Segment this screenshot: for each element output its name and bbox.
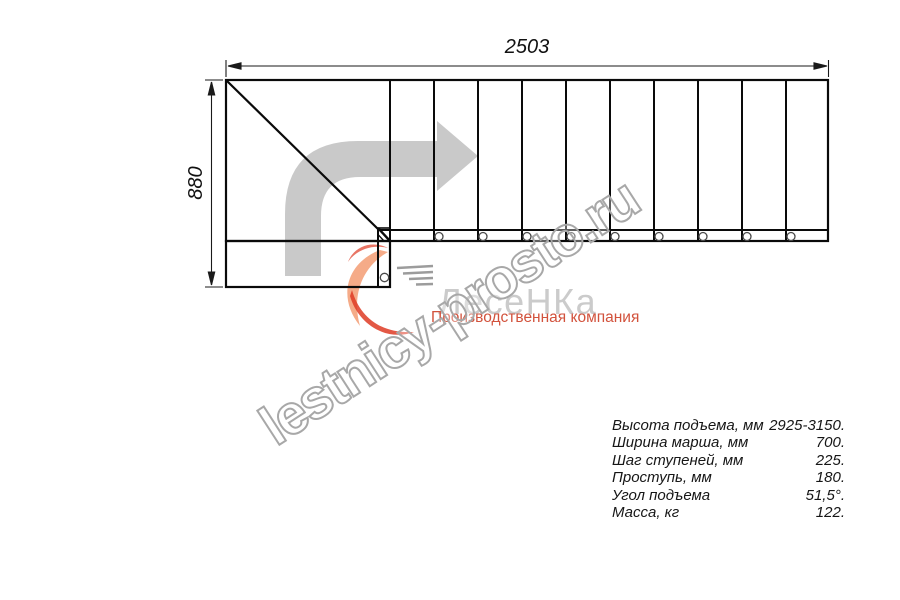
spec-value: 2925-3150.	[769, 417, 845, 434]
spec-row-step-pitch: Шаг ступеней, мм 225.	[612, 452, 845, 469]
spec-row-mass: Масса, кг 122.	[612, 504, 845, 521]
spec-label: Проступь, мм	[612, 469, 712, 486]
spec-row-height: Высота подъема, мм 2925-3150.	[612, 417, 845, 434]
spec-label: Масса, кг	[612, 504, 679, 521]
spec-value: 122.	[816, 504, 845, 521]
spec-row-flight-width: Ширина марша, мм 700.	[612, 434, 845, 451]
spec-label: Высота подъема, мм	[612, 417, 764, 434]
spec-value: 700.	[816, 434, 845, 451]
spec-label: Угол подъема	[612, 487, 710, 504]
spec-label: Ширина марша, мм	[612, 434, 748, 451]
spec-row-angle: Угол подъема 51,5°.	[612, 487, 845, 504]
spec-value: 225.	[816, 452, 845, 469]
spec-row-tread: Проступь, мм 180.	[612, 469, 845, 486]
watermark-text: lestnicy-prosto.ru	[248, 166, 649, 457]
spec-value: 180.	[816, 469, 845, 486]
specs-table: Высота подъема, мм 2925-3150. Ширина мар…	[612, 417, 845, 521]
spec-value: 51,5°.	[806, 487, 845, 504]
spec-label: Шаг ступеней, мм	[612, 452, 743, 469]
stair-drawing-canvas: 2503 880 ЛесеНКа Производственная компан…	[0, 0, 900, 600]
